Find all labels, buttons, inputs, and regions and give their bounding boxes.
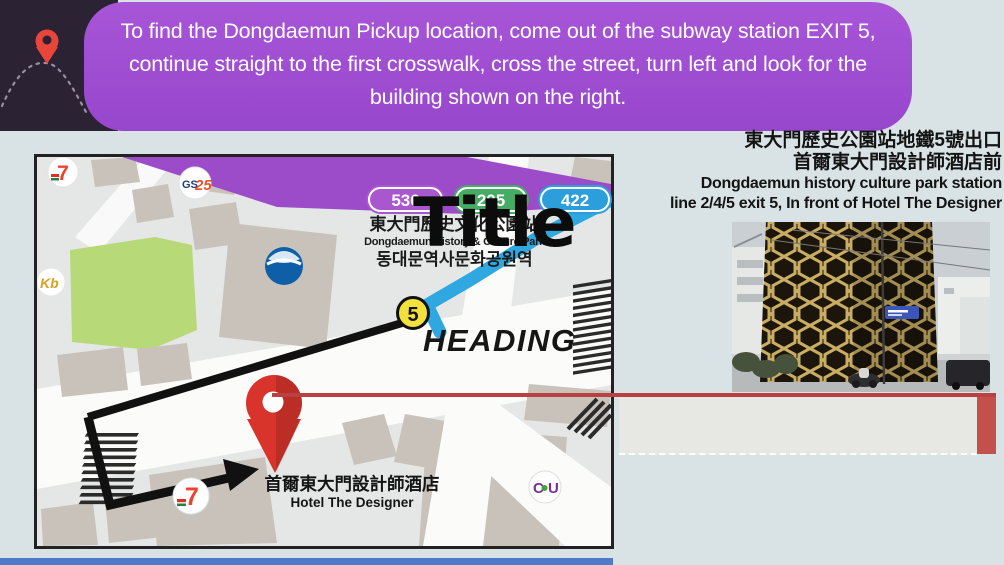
location-pin-icon (36, 30, 59, 65)
photo-street-sign (885, 306, 919, 319)
dashed-path (2, 63, 86, 112)
banner-line-3: building shown on the right. (84, 81, 912, 114)
hotel-name-zh: 首爾東大門設計師酒店 (262, 474, 442, 495)
seven-eleven-bottom-icon: 7 (173, 478, 209, 514)
svg-text:7: 7 (57, 162, 69, 185)
photo-caption: 東大門歷史公園站地鐵5號出口 首爾東大門設計師酒店前 Dongdaemun hi… (560, 130, 1002, 214)
banner-line-1: To find the Dongdaemun Pickup location, … (84, 15, 912, 48)
banner-line-2: continue straight to the first crosswalk… (84, 48, 912, 81)
cu-icon: C U (529, 471, 561, 503)
photo-car (946, 360, 990, 390)
svg-text:Kb: Kb (40, 275, 59, 291)
heading-placeholder: HEADING (423, 323, 576, 359)
hotel-name-en: Hotel The Designer (262, 495, 442, 511)
hotel-photo (732, 222, 990, 392)
caption-line-zh-2: 首爾東大門設計師酒店前 (560, 152, 1002, 174)
svg-text:7: 7 (185, 483, 199, 511)
hotel-photo-graphic (732, 222, 990, 392)
footer-box (619, 397, 977, 455)
bottom-border (0, 558, 613, 565)
hotel-label: 首爾東大門設計師酒店 Hotel The Designer (262, 474, 442, 511)
caption-line-zh-1: 東大門歷史公園站地鐵5號出口 (560, 130, 1002, 152)
connector-bar (977, 393, 996, 454)
svg-text:25: 25 (194, 177, 212, 194)
title-placeholder: Title (413, 191, 575, 257)
seven-eleven-icon: 7 (48, 157, 78, 187)
caption-line-en-1: Dongdaemun history culture park station (560, 174, 1002, 194)
caption-line-en-2: line 2/4/5 exit 5, In front of Hotel The… (560, 194, 1002, 214)
connector-line (272, 393, 996, 397)
park-area (70, 237, 197, 350)
kb-bank-icon: Kb (37, 268, 65, 296)
svg-text:U: U (548, 480, 559, 497)
instruction-banner: To find the Dongdaemun Pickup location, … (84, 2, 912, 131)
woori-bank-icon (265, 247, 303, 285)
map-panel: 7 GS 25 Kb 7 C U (34, 154, 614, 549)
